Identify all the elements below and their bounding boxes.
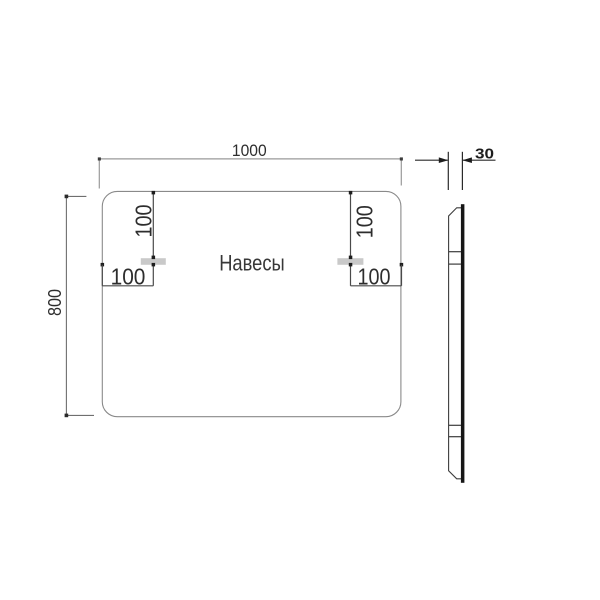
svg-text:800: 800 [44, 289, 65, 316]
svg-text:100: 100 [111, 264, 146, 290]
svg-text:100: 100 [358, 264, 391, 290]
svg-text:Навесы: Навесы [219, 250, 285, 275]
svg-text:100: 100 [131, 204, 157, 237]
svg-text:100: 100 [351, 205, 377, 238]
svg-text:30: 30 [475, 145, 494, 162]
svg-text:1000: 1000 [232, 142, 267, 160]
